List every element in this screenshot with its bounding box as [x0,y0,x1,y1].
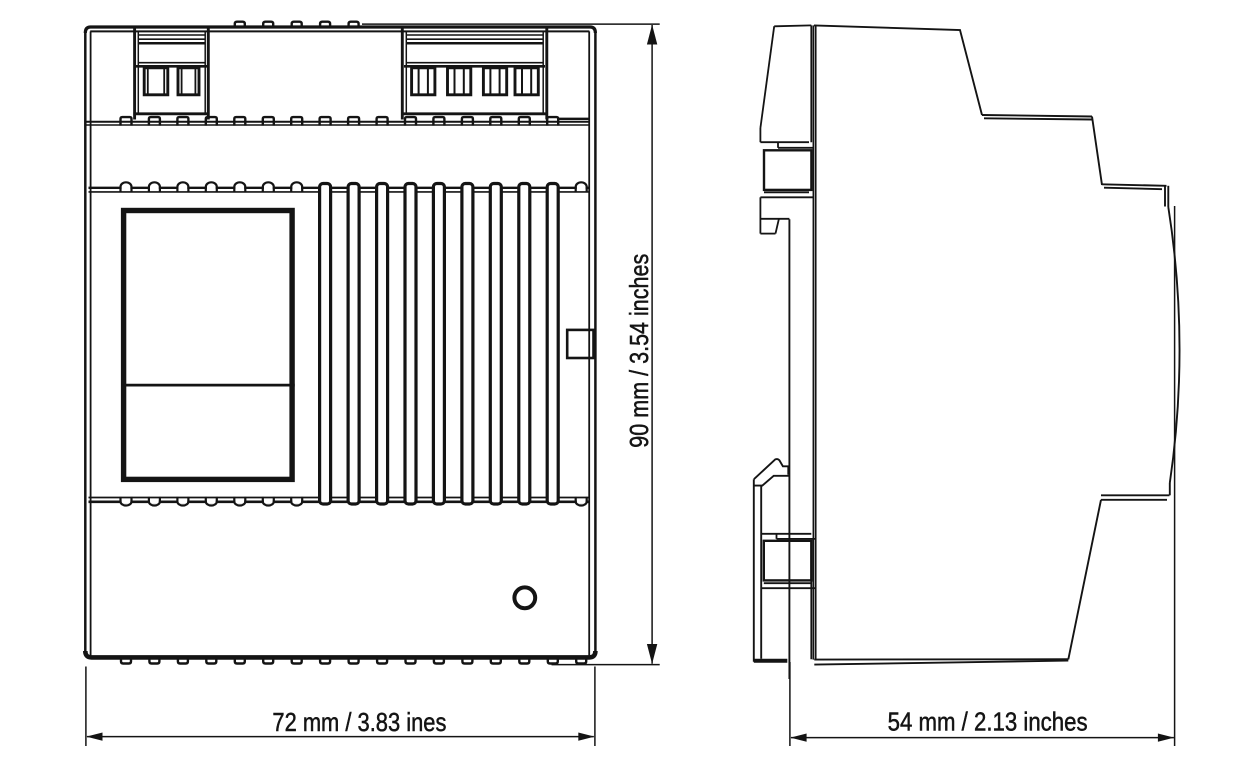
svg-text:72 mm / 3.83 ines: 72 mm / 3.83 ines [272,707,446,737]
svg-text:90 mm / 3.54 inches: 90 mm / 3.54 inches [624,254,654,448]
svg-text:54 mm / 2.13 inches: 54 mm / 2.13 inches [888,707,1088,737]
